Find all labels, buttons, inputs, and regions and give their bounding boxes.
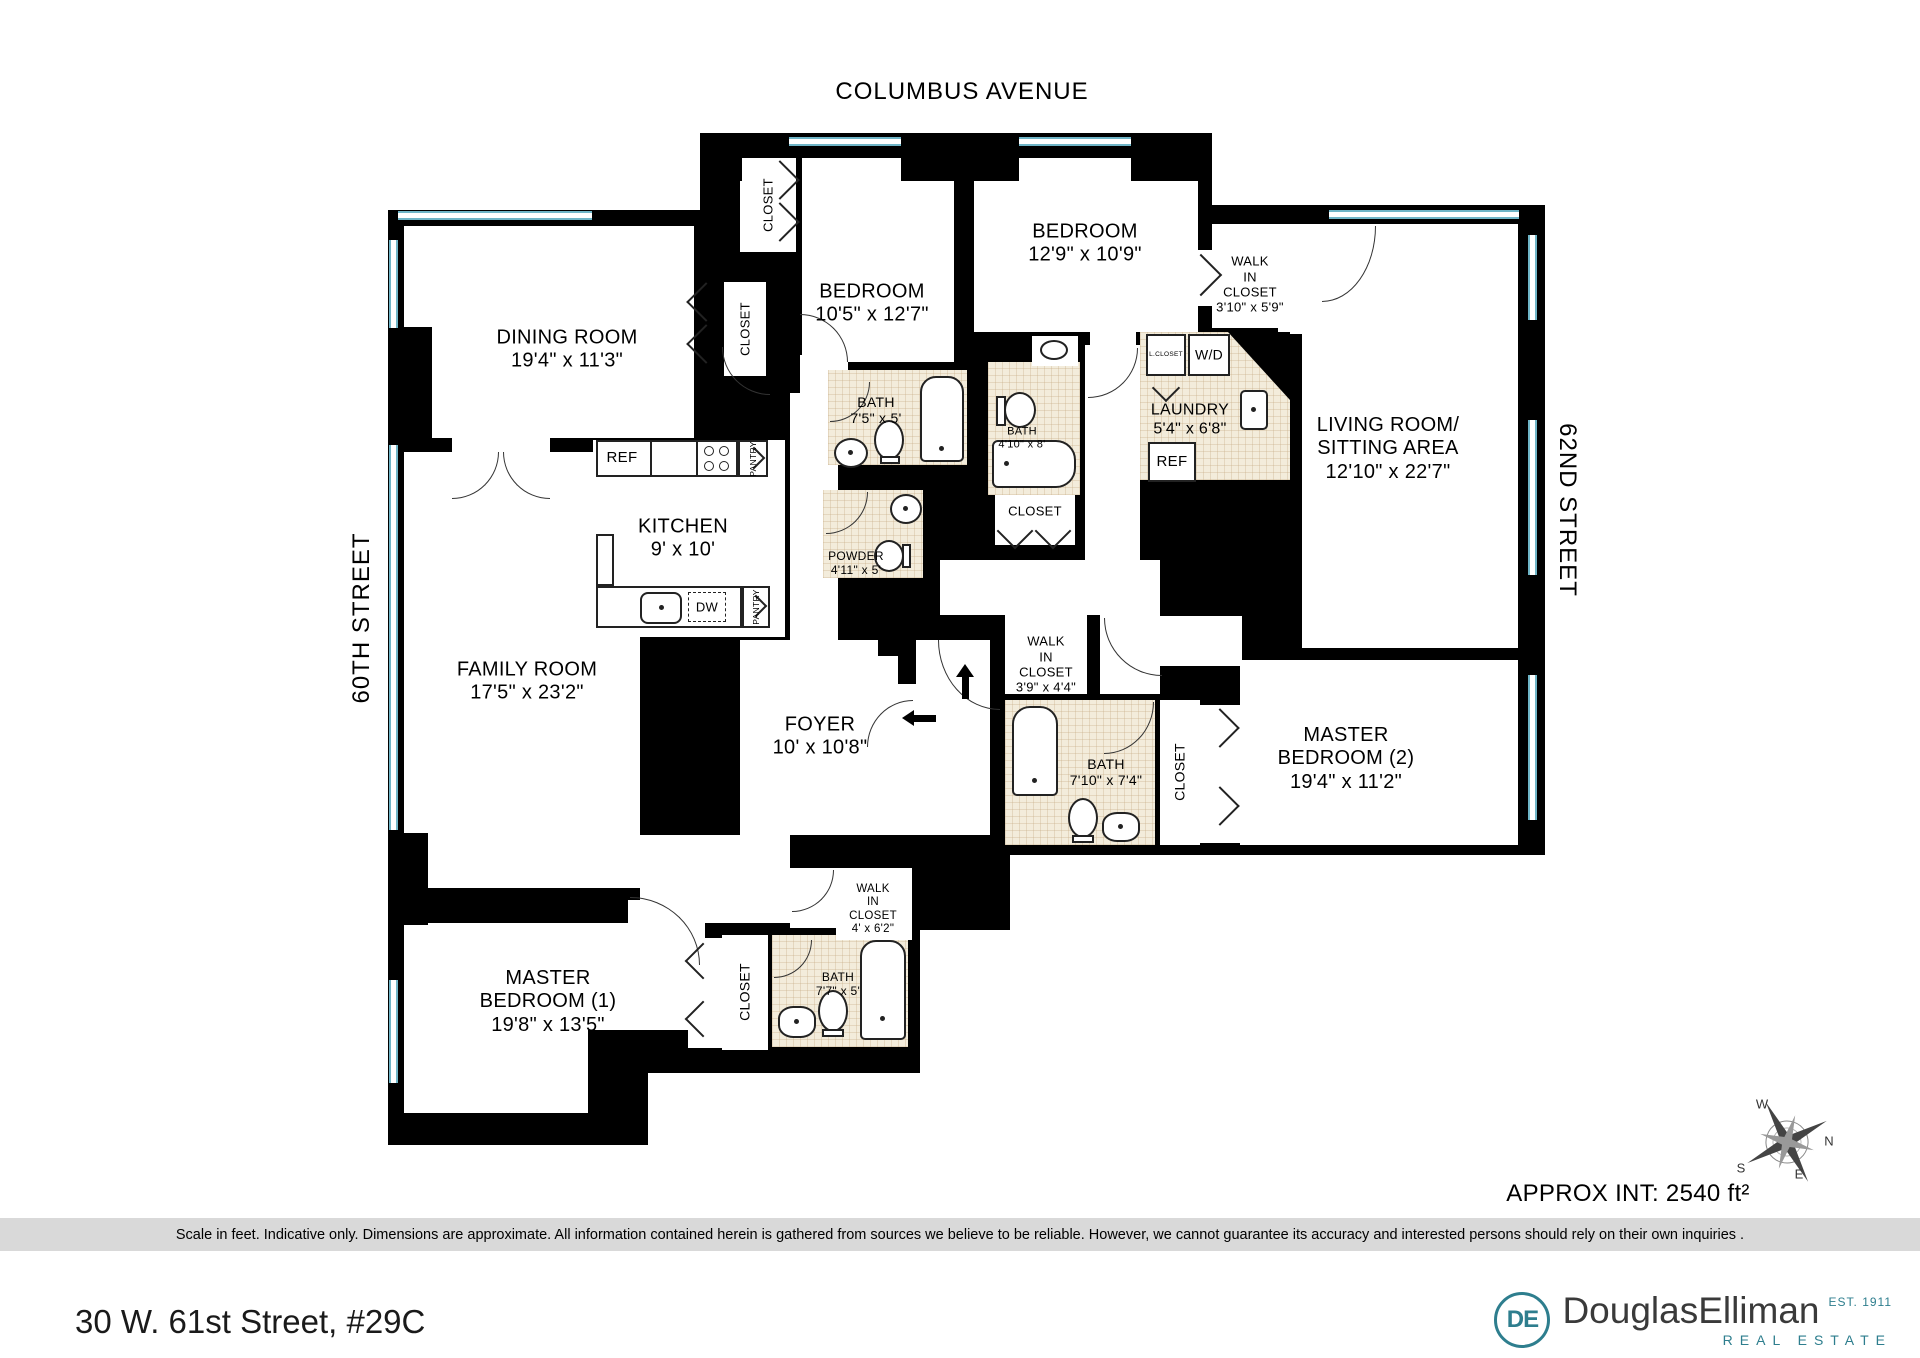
entry-arrow-left-stem	[914, 715, 936, 722]
disclaimer-text: Scale in feet. Indicative only. Dimensio…	[176, 1227, 1744, 1243]
compass-e: E	[1795, 1167, 1804, 1182]
room-label-bath1: BATH7'5" x 5'	[850, 377, 901, 427]
opening-living	[1296, 232, 1322, 290]
counter	[596, 534, 614, 586]
ref-label: REF	[1157, 453, 1188, 471]
wall	[388, 833, 428, 925]
opening-master2	[1160, 616, 1242, 666]
brand-monogram-icon: DE	[1494, 1292, 1550, 1348]
sink-drain	[1118, 824, 1123, 829]
closet-label: CLOSET	[760, 178, 775, 232]
counter-divider	[696, 440, 698, 477]
room-label-master1: MASTER BEDROOM (1)19'8" x 13'5"	[480, 943, 617, 1037]
sink-drain	[1251, 407, 1256, 412]
room-label-wic3: WALK IN CLOSET4' x 6'2"	[849, 869, 897, 937]
toilet-base	[822, 1029, 844, 1037]
pantry-label: PANTRY	[751, 589, 761, 625]
compass-s: S	[1737, 1161, 1746, 1176]
window	[1329, 210, 1519, 219]
opening-dining-doors	[452, 432, 550, 452]
sink-drain	[659, 605, 664, 610]
sink-drain	[903, 506, 908, 511]
brand-monogram-text: DE	[1507, 1306, 1538, 1334]
stove-burner	[704, 446, 714, 456]
sink-drain	[848, 450, 853, 455]
window	[389, 445, 398, 830]
tub-drain	[1032, 778, 1037, 783]
window	[1528, 235, 1537, 320]
disclaimer-band: Scale in feet. Indicative only. Dimensio…	[0, 1218, 1920, 1251]
wall	[700, 133, 742, 181]
room-label-bedroom-a: BEDROOM10'5" x 12'7"	[815, 257, 929, 328]
ref-label: REF	[607, 449, 638, 467]
closet-label: CLOSET	[1008, 503, 1062, 518]
closet-label: CLOSET	[737, 302, 752, 356]
brand-name: DouglasElliman	[1562, 1292, 1819, 1329]
street-label-right: 62ND STREET	[1553, 423, 1581, 597]
tub-drain	[1004, 461, 1009, 466]
toilet-base	[880, 456, 900, 464]
window	[398, 211, 592, 220]
sink-drain	[794, 1019, 799, 1024]
room-label-wic2: WALK IN CLOSET3'9" x 4'4"	[1016, 619, 1076, 696]
window	[1019, 137, 1131, 146]
room-label-kitchen: KITCHEN9' x 10'	[638, 492, 728, 563]
wall	[388, 327, 432, 442]
entry-arrow-up	[956, 664, 974, 677]
tub-drain	[939, 446, 944, 451]
bathtub	[860, 940, 906, 1040]
toilet-base	[1072, 835, 1094, 843]
toilet-tank	[902, 544, 911, 568]
floorplan-page: COLUMBUS AVENUE 60TH STREET 62ND STREET …	[0, 0, 1920, 1358]
counter-divider	[650, 440, 652, 477]
compass-w: W	[1756, 1097, 1768, 1112]
window	[1528, 675, 1537, 820]
brand-est: EST. 1911	[1829, 1295, 1892, 1309]
room-label-laundry: LAUNDRY5'4" x 6'8"	[1151, 383, 1229, 440]
address: 30 W. 61st Street, #29C	[75, 1303, 425, 1341]
lcloset-label: L.CLOSET	[1149, 351, 1183, 359]
brand-text: DouglasElliman EST. 1911 REAL ESTATE	[1562, 1292, 1892, 1348]
room-label-bedroom-b: BEDROOM12'9" x 10'9"	[1028, 197, 1142, 268]
street-label-top: COLUMBUS AVENUE	[835, 78, 1088, 106]
dw-label: DW	[696, 599, 718, 614]
street-label-left: 60TH STREET	[348, 532, 376, 703]
room-label-family: FAMILY ROOM17'5" x 23'2"	[457, 635, 597, 706]
wall	[898, 650, 916, 684]
room-label-dining: DINING ROOM19'4" x 11'3"	[496, 303, 637, 374]
closet-label: CLOSET	[737, 963, 754, 1021]
pantry-label: PANTRY	[748, 441, 758, 477]
room-label-bath3: BATH7'10" x 7'4"	[1070, 739, 1143, 789]
room-label-master2: MASTER BEDROOM (2)19'4" x 11'2"	[1278, 700, 1415, 794]
brand-logo: DE DouglasElliman EST. 1911 REAL ESTATE	[1494, 1292, 1892, 1348]
window	[1528, 420, 1537, 575]
wall	[1131, 133, 1212, 181]
stove-burner	[719, 446, 729, 456]
sink	[1040, 340, 1068, 360]
window	[389, 980, 398, 1083]
window	[389, 240, 398, 328]
approx-area: APPROX INT: 2540 ft²	[1506, 1180, 1749, 1208]
room-label-powder: POWDER4'11" x 5'	[828, 535, 884, 577]
compass-n: N	[1824, 1134, 1833, 1149]
compass-rose	[1737, 1092, 1837, 1192]
room-label-bath4: BATH7'7" x 5'	[816, 956, 860, 998]
toilet	[1068, 798, 1098, 838]
wd-label: W/D	[1195, 347, 1223, 364]
room-label-bath2: BATH4'10" x 8'	[998, 413, 1045, 452]
entry-arrow-up-stem	[962, 677, 969, 699]
stove-burner	[704, 461, 714, 471]
wall	[901, 133, 1019, 181]
room-label-foyer: FOYER10' x 10'8"	[773, 690, 868, 761]
corridor-east	[940, 560, 1160, 615]
closet-label: CLOSET	[1172, 743, 1189, 801]
entry-arrow-left	[902, 710, 914, 726]
brand-tagline: REAL ESTATE	[1562, 1332, 1892, 1348]
stove-burner	[719, 461, 729, 471]
window	[789, 137, 901, 146]
room-label-living: LIVING ROOM/ SITTING AREA12'10" x 22'7"	[1317, 390, 1460, 484]
tub-drain	[880, 1016, 885, 1021]
room-label-wic1: WALK IN CLOSET3'10" x 5'9"	[1216, 239, 1284, 316]
